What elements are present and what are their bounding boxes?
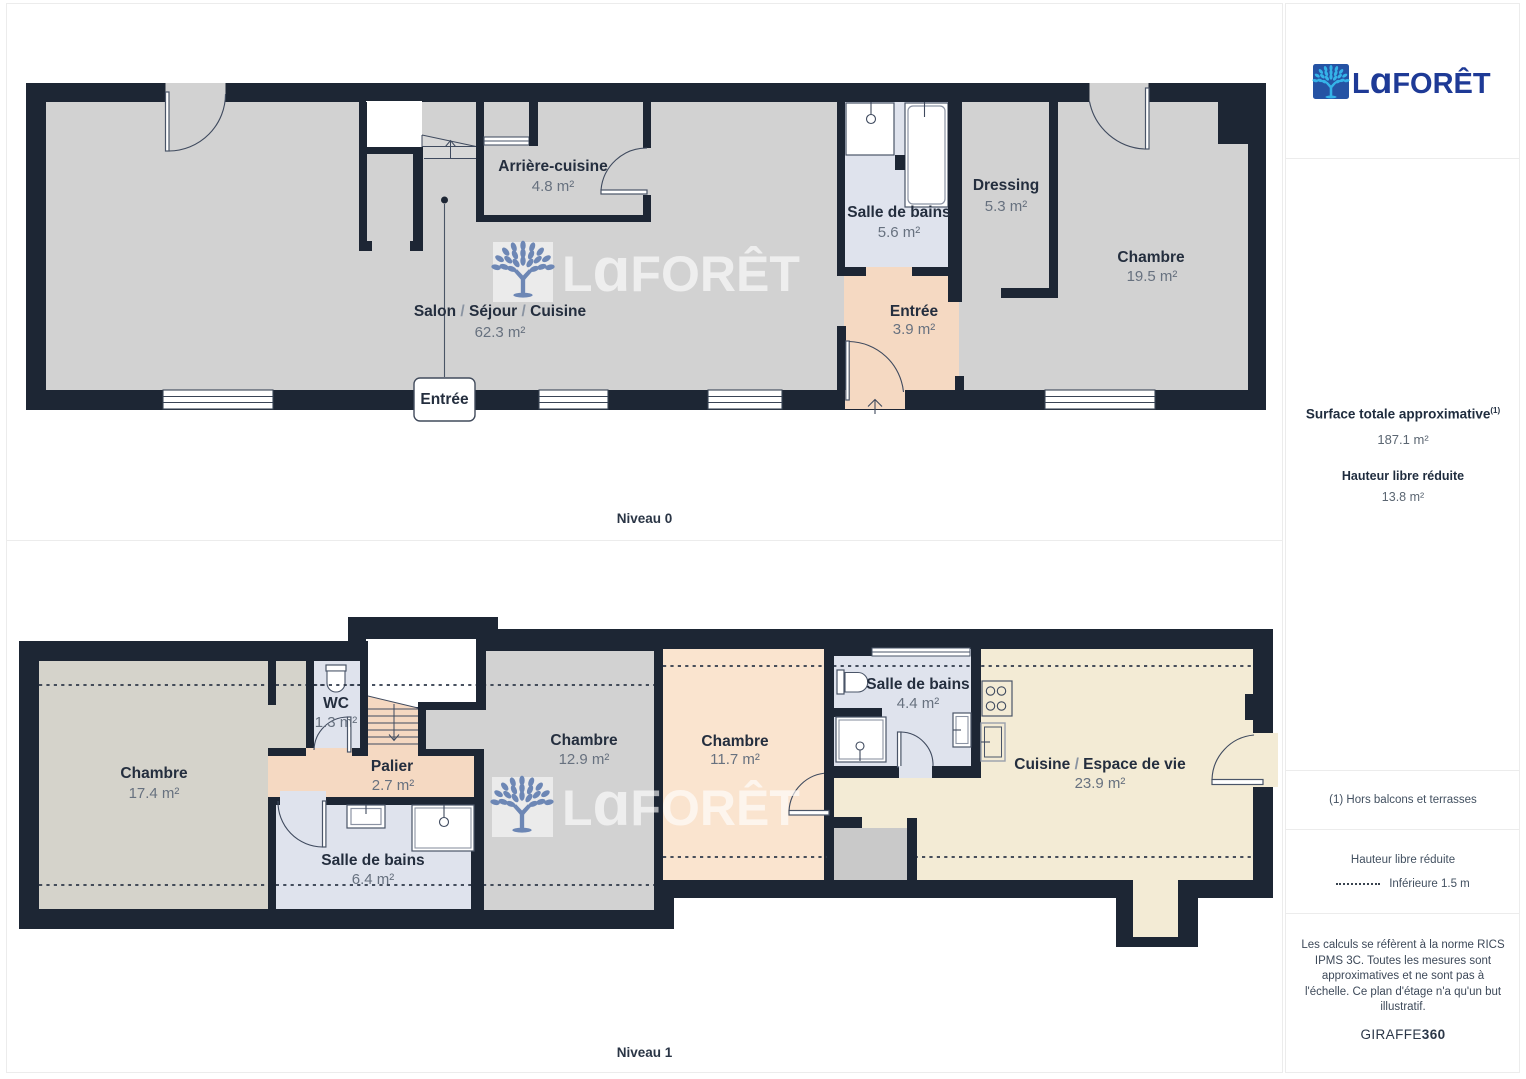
svg-text:Salle de bains: Salle de bains [847,204,950,221]
svg-text:LɑFORÊT: LɑFORÊT [562,770,800,839]
svg-text:6.4 m²: 6.4 m² [352,871,395,888]
svg-text:Entrée: Entrée [890,303,939,320]
svg-text:23.9 m²: 23.9 m² [1075,775,1126,792]
svg-text:Chambre: Chambre [550,732,618,749]
svg-text:5.6 m²: 5.6 m² [878,224,921,241]
svg-text:Chambre: Chambre [1117,249,1185,266]
svg-text:1.3 m²: 1.3 m² [315,714,358,731]
svg-text:LɑFORÊT: LɑFORÊT [562,236,800,305]
svg-text:Salle de bains: Salle de bains [866,676,969,693]
svg-text:19.5 m²: 19.5 m² [1127,268,1178,285]
svg-text:Salon / Séjour / Cuisine: Salon / Séjour / Cuisine [414,303,587,320]
svg-text:Dressing: Dressing [973,177,1039,194]
svg-text:5.3 m²: 5.3 m² [985,198,1028,215]
svg-text:4.8 m²: 4.8 m² [532,178,575,195]
svg-text:Palier: Palier [371,758,413,775]
svg-text:Chambre: Chambre [120,765,188,782]
svg-text:12.9 m²: 12.9 m² [559,751,610,768]
svg-text:11.7 m²: 11.7 m² [710,751,760,768]
svg-text:2.7 m²: 2.7 m² [372,777,415,794]
svg-text:4.4 m²: 4.4 m² [897,695,940,712]
svg-text:17.4 m²: 17.4 m² [129,785,180,802]
svg-text:Entrée: Entrée [420,391,469,408]
svg-text:LɑFORÊT: LɑFORÊT [1352,60,1491,101]
svg-text:3.9 m²: 3.9 m² [893,321,936,338]
svg-text:Salle de bains: Salle de bains [321,852,424,869]
svg-text:Chambre: Chambre [701,733,769,750]
svg-text:62.3 m²: 62.3 m² [475,324,526,341]
svg-text:Arrière-cuisine: Arrière-cuisine [498,158,608,175]
svg-text:Cuisine / Espace de vie: Cuisine / Espace de vie [1014,756,1186,773]
svg-text:WC: WC [323,695,349,712]
